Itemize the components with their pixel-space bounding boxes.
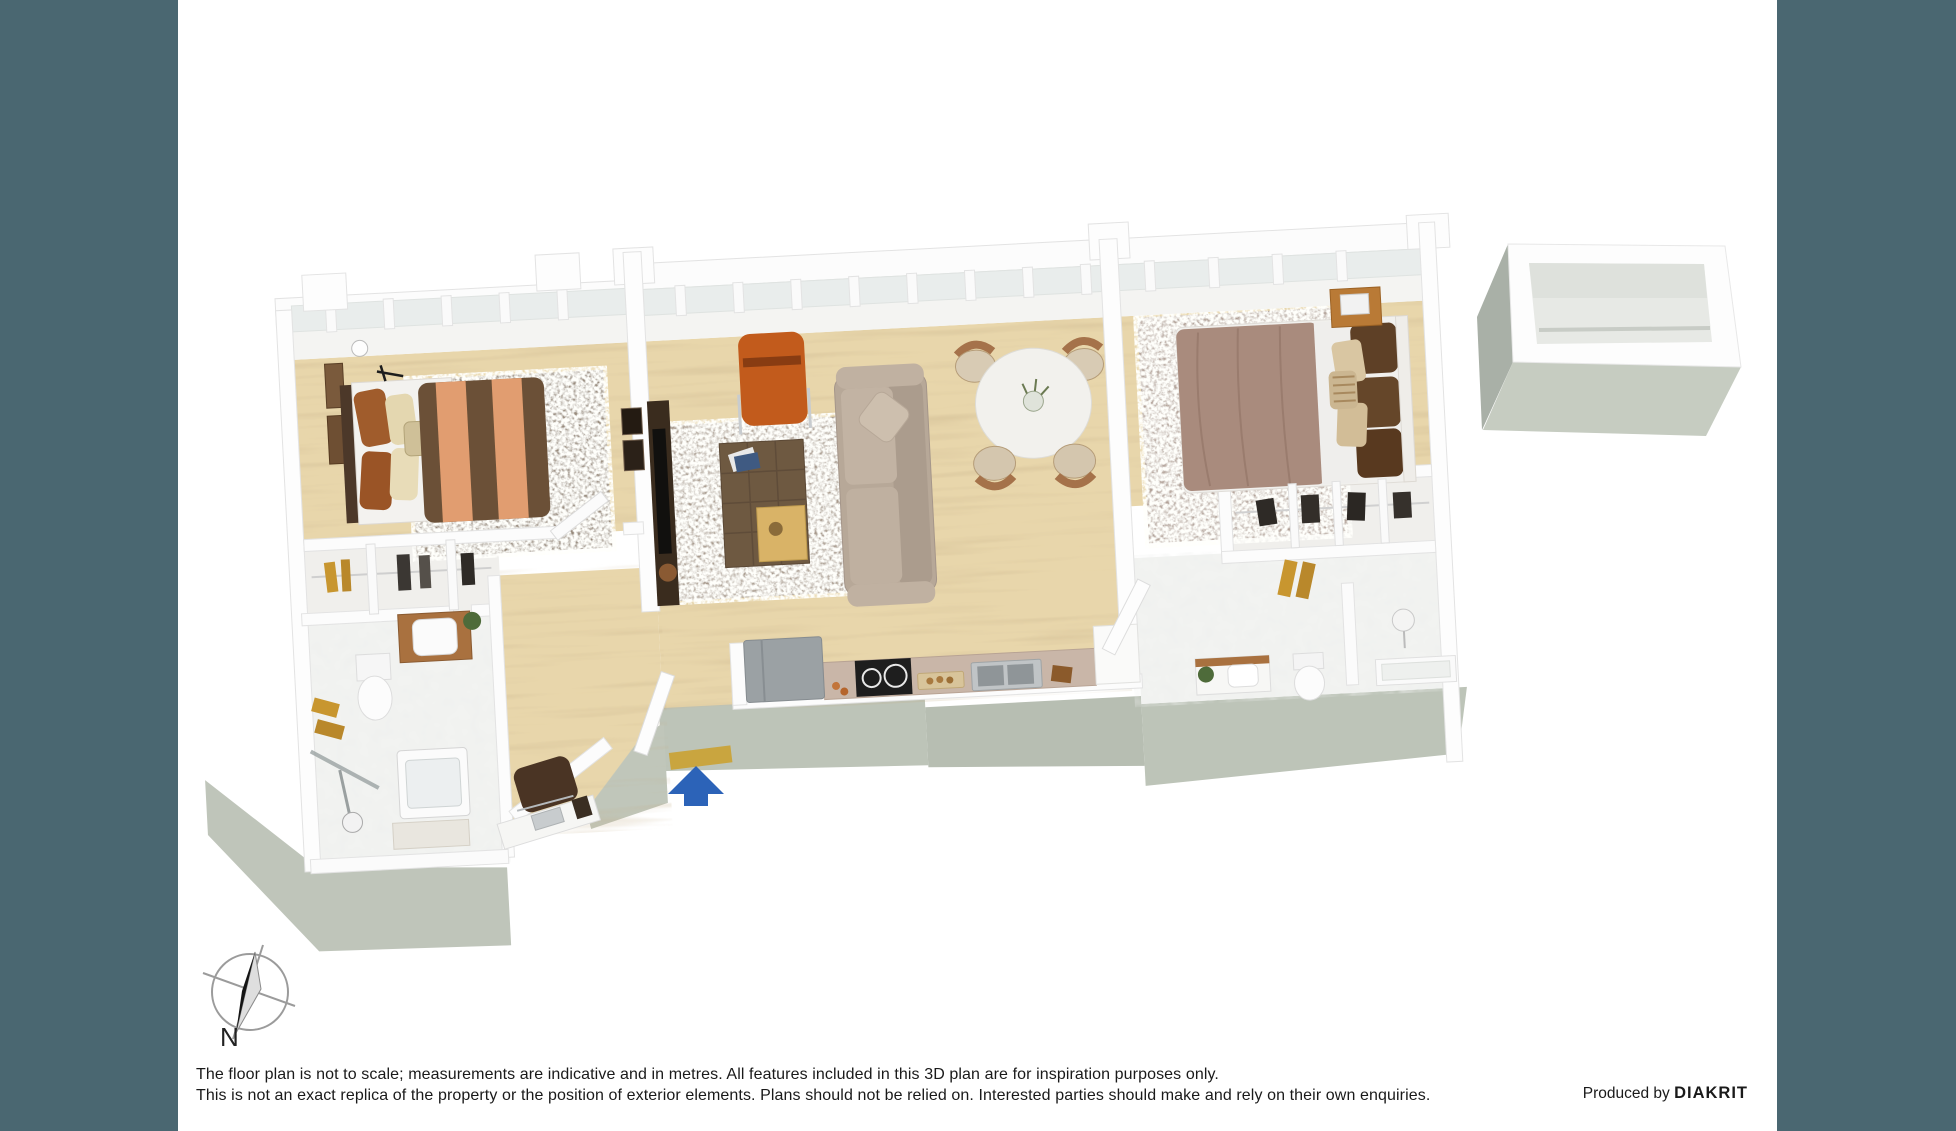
shower-head xyxy=(342,812,363,833)
floor-plan-image xyxy=(0,0,1956,1131)
hanging-clothes xyxy=(341,559,352,591)
balcony-ledge xyxy=(1539,328,1710,330)
wall-stub xyxy=(535,253,581,291)
pendant-lamp xyxy=(351,340,368,357)
shoes xyxy=(1347,492,1366,521)
shoes xyxy=(1301,494,1320,523)
laptop xyxy=(1340,294,1369,315)
disclaimer-line-1: The floor plan is not to scale; measurem… xyxy=(196,1066,1219,1084)
wall-stub xyxy=(302,273,348,311)
shower-head xyxy=(1392,609,1415,632)
credit-brand: DIAKRIT xyxy=(1674,1084,1748,1102)
disclaimer-line-2: This is not an exact replica of the prop… xyxy=(196,1087,1430,1105)
hanging-clothes xyxy=(419,555,432,589)
cabinet xyxy=(393,819,470,849)
balcony-box xyxy=(1477,244,1741,436)
right-frame-bar xyxy=(1777,0,1956,1131)
compass-north-label: N xyxy=(220,1022,239,1053)
pillow xyxy=(359,451,394,511)
balcony-front-face xyxy=(1483,362,1741,436)
left-frame-bar xyxy=(0,0,178,1131)
hanging-clothes xyxy=(397,554,412,591)
fridge xyxy=(744,637,825,703)
wall-art xyxy=(623,440,645,471)
hanging-clothes xyxy=(461,553,476,586)
wall-art xyxy=(621,408,642,435)
credit-prefix: Produced by xyxy=(1583,1085,1674,1102)
basin xyxy=(412,618,458,656)
producer-credit: Produced by DIAKRIT xyxy=(1583,1084,1748,1103)
shoes xyxy=(1393,492,1412,519)
page: N The floor plan is not to scale; measur… xyxy=(0,0,1956,1131)
basin xyxy=(1227,664,1258,688)
chaise-lounge xyxy=(737,331,808,426)
tray xyxy=(757,505,808,561)
